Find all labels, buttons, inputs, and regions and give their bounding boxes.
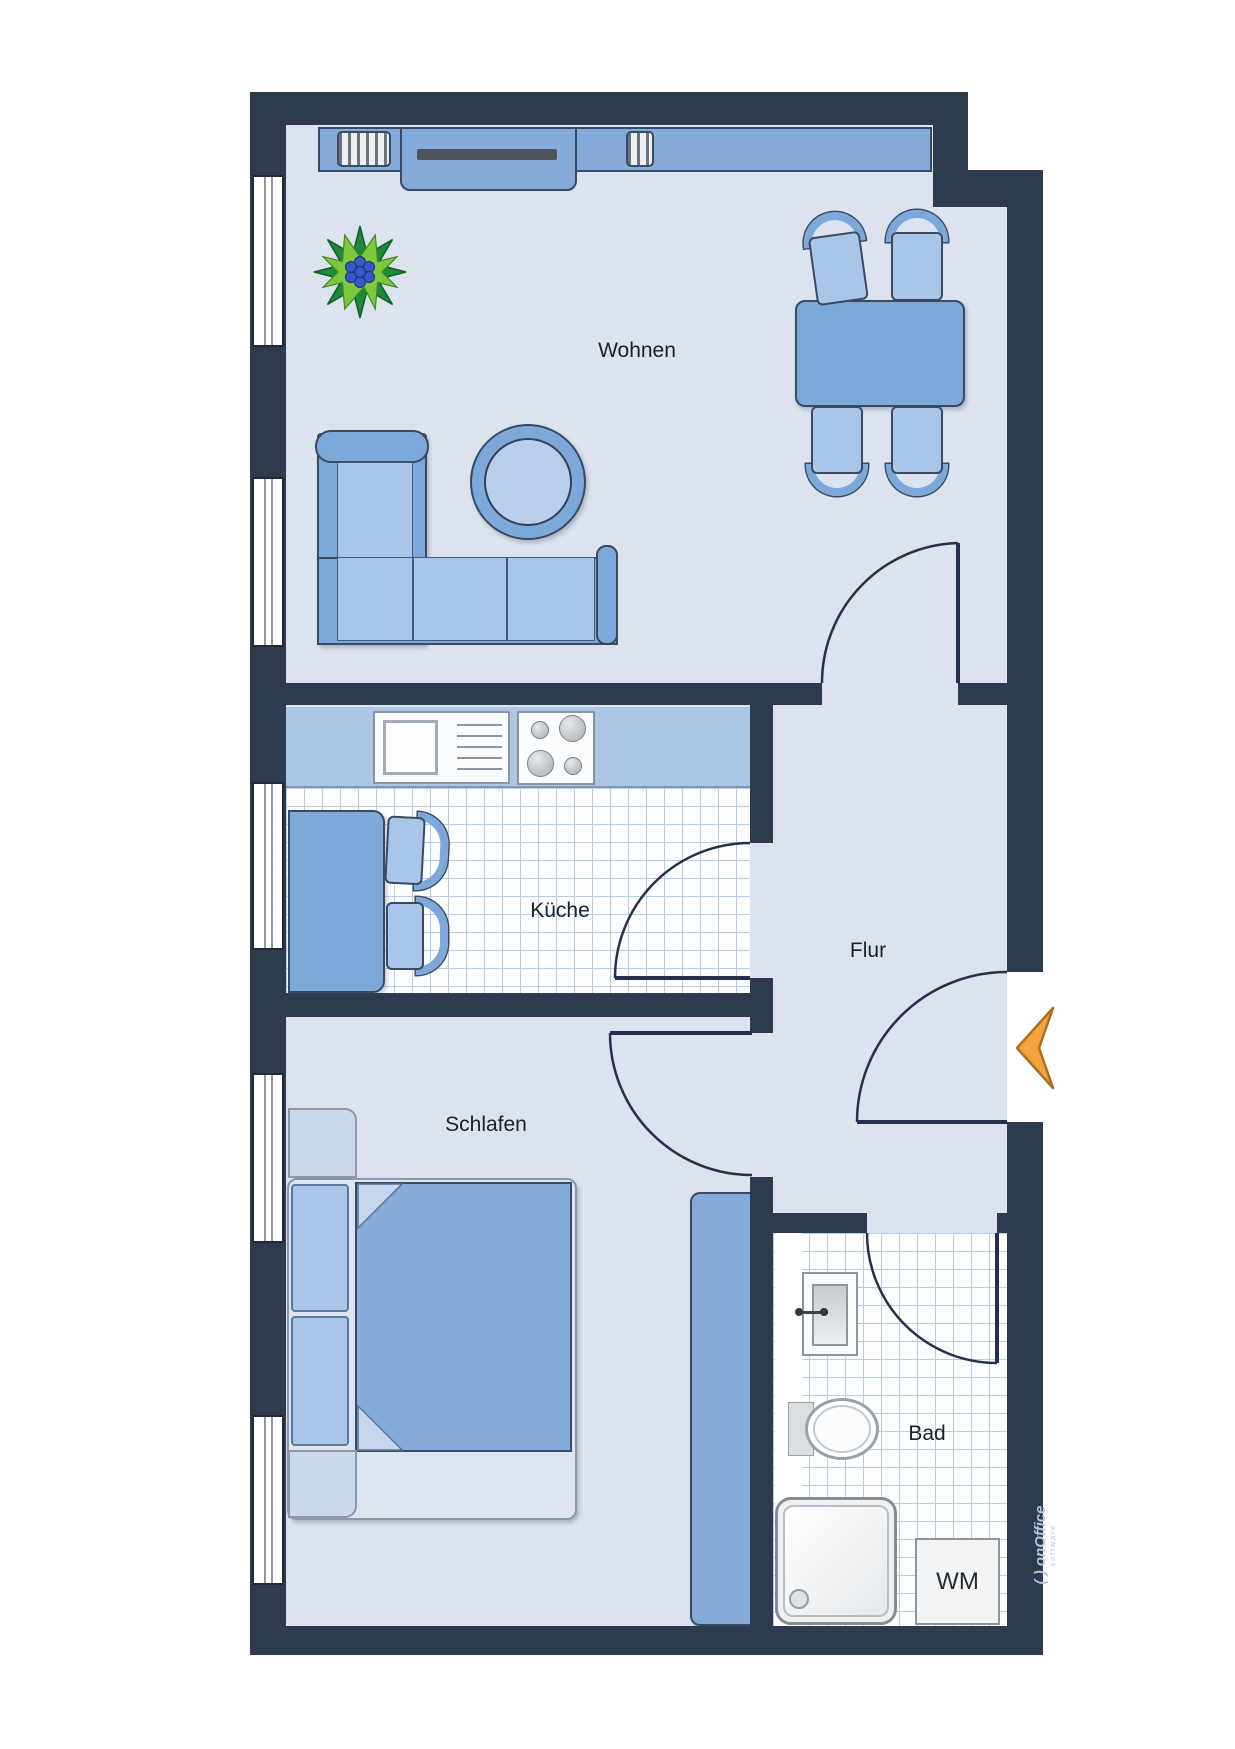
bed-bench (288, 1450, 357, 1518)
wall-kitchen-hall (750, 685, 773, 843)
chair-seat (891, 406, 943, 474)
chair-seat (811, 406, 863, 474)
floorplan-canvas: WM (0, 0, 1235, 1749)
nightstand (288, 1108, 357, 1178)
sink-basin (383, 720, 438, 775)
room-label-bathroom: Bad (908, 1422, 945, 1446)
entrance-arrow-icon (1017, 1008, 1053, 1088)
stove-burner (564, 757, 582, 775)
wall-outer-right-upper (1007, 207, 1043, 972)
window (252, 477, 284, 647)
sofa-backrest (315, 430, 429, 463)
wall-hall-bath-right (997, 1213, 1007, 1233)
kitchen-chair (384, 897, 448, 975)
washbasin-faucet-knob (795, 1308, 803, 1316)
window (252, 782, 284, 950)
window (252, 175, 284, 347)
onoffice-watermark: ( ) onOffice software (1033, 1465, 1073, 1625)
sofa-cushion (507, 557, 595, 641)
kitchen-table (288, 810, 385, 993)
washbasin-faucet-knob (820, 1308, 828, 1316)
stove-burner (531, 721, 549, 739)
chair-seat (386, 902, 424, 970)
washing-machine-label: WM (936, 1568, 979, 1596)
wall-hall-bath-left (773, 1213, 867, 1233)
shower-drain (789, 1589, 809, 1609)
stove-burner (527, 750, 554, 777)
wall-living-hall-stub (958, 683, 1007, 705)
washbasin-bowl (812, 1284, 848, 1346)
kitchen-chair (382, 810, 450, 891)
stove-burner (559, 715, 586, 742)
sofa-cushion (413, 557, 507, 641)
room-label-kitchen: Küche (530, 899, 590, 923)
radiator-grille-left (337, 131, 391, 167)
sofa-cushion (337, 462, 413, 559)
sink-drainer (457, 724, 502, 774)
window (252, 1415, 284, 1585)
bed-pillow (291, 1184, 349, 1312)
wall-hall-mid-stub (750, 978, 773, 1033)
wall-bedroom-bath (750, 1177, 773, 1626)
tv (417, 149, 557, 160)
sofa-cushion (337, 557, 413, 641)
radiator-grille-right (626, 131, 654, 167)
dining-chair (886, 210, 948, 303)
dining-chair (806, 404, 868, 496)
window (252, 1073, 284, 1243)
wall-living-kitchen (286, 683, 822, 705)
room-label-hall: Flur (850, 939, 886, 963)
sofa-armrest (596, 545, 618, 645)
wall-step-horizontal (933, 170, 1043, 207)
room-label-living: Wohnen (598, 339, 676, 363)
dining-chair (886, 404, 948, 496)
onoffice-watermark-sub: software (1050, 1465, 1057, 1625)
dining-table (795, 300, 965, 407)
wall-outer-top (250, 92, 968, 125)
bed-duvet (355, 1182, 572, 1452)
coffee-table-top (484, 438, 572, 526)
outer-notch (968, 92, 1043, 170)
room-label-bedroom: Schlafen (445, 1113, 527, 1137)
bed-pillow (291, 1316, 349, 1446)
chair-seat (808, 231, 869, 307)
dining-chair (800, 208, 874, 309)
washing-machine: WM (915, 1538, 1000, 1625)
wardrobe (690, 1192, 752, 1626)
chair-seat (384, 815, 426, 885)
onoffice-watermark-brand: ( ) onOffice (1033, 1465, 1048, 1625)
toilet-bowl-inner (813, 1405, 871, 1453)
wall-kitchen-bedroom (286, 993, 750, 1017)
chair-seat (891, 232, 943, 301)
wall-outer-bottom (250, 1626, 1043, 1655)
wall-step-vertical (933, 125, 968, 171)
